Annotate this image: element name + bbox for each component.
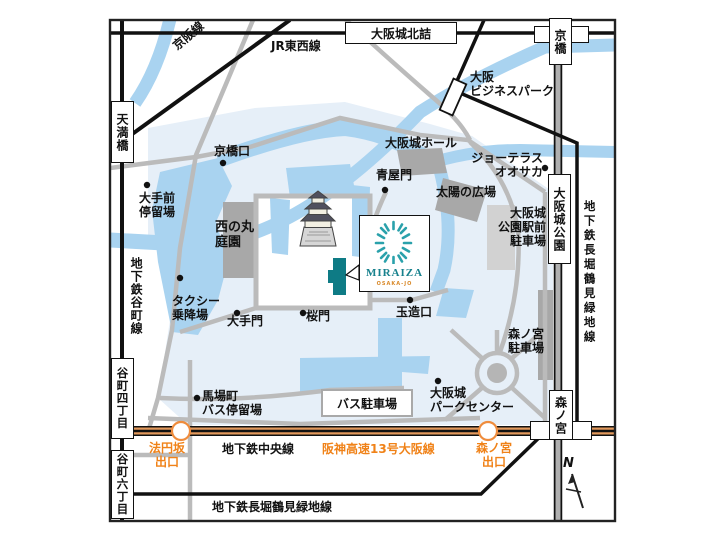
babacho-dot [194, 395, 200, 401]
station-temmabashi: 天満橋 [111, 101, 134, 163]
label-osakajo-hall: 大阪城ホール [385, 136, 457, 150]
label-otemae-teiryujo: 大手前 停留場 [139, 191, 175, 219]
station-morinomiya: 森ノ宮 [549, 390, 573, 439]
label-jr-tozai-line: JR東西線 [271, 39, 321, 53]
north-compass-icon [566, 474, 583, 508]
station-tanimachi-4chome: 谷町四丁目 [111, 358, 134, 439]
label-hoenzaka-exit: 法円坂 出口 [143, 441, 191, 469]
station-osakajo-kitazume: 大阪城北詰 [345, 22, 457, 44]
label-sakuramon: 桜門 [306, 309, 330, 323]
station-kyobashi: 京橋 [549, 18, 572, 65]
label-taiyo-no-hiroba: 太陽の広場 [436, 185, 496, 199]
hoenzaka-exit-circle [172, 422, 190, 440]
miraiza-logo-subtitle: OSAKA-JO [360, 281, 429, 287]
kyobashi-guchi-dot [220, 160, 226, 166]
inner-moat-west [270, 198, 290, 255]
miraiza-logo-box: MIRAIZA OSAKA-JO [359, 215, 430, 292]
label-obp: 大阪 ビジネスパーク [470, 70, 554, 98]
station-osakajo-koen: 大阪城公園 [548, 174, 571, 264]
label-babacho-bus-stop: 馬場町 バス停留場 [202, 389, 262, 417]
tamatsukuri-dot [407, 297, 413, 303]
miraiza-logo-icon [360, 216, 427, 264]
label-taxi-noriba: タクシー 乗降場 [172, 294, 220, 322]
park-center-dot [435, 378, 441, 384]
label-aoyamon: 青屋門 [376, 168, 412, 182]
label-tamatsukuri-guchi: 玉造口 [396, 305, 432, 319]
label-tanimachi-subway-line: 地下鉄谷町線 [129, 257, 143, 343]
miraiza-logo-text: MIRAIZA [360, 267, 429, 279]
label-kyobashi-guchi: 京橋口 [214, 144, 250, 158]
label-jo-terrace: ジョーテラス オオサカ [455, 151, 543, 179]
label-nishinomaru-teien: 西の丸 庭園 [215, 220, 254, 251]
label-morinomiya-exit: 森ノ宮 出口 [470, 441, 518, 469]
otemae-dot [144, 182, 150, 188]
station-tanimachi-6chome: 谷町六丁目 [111, 450, 134, 519]
label-koen-ekimae-parking: 大阪城 公園駅前 駐車場 [468, 206, 546, 248]
morinomiya-exit-circle [479, 422, 497, 440]
label-nagahori-line-bottom: 地下鉄長堀鶴見緑地線 [212, 500, 332, 514]
label-morinomiya-parking: 森ノ宮 駐車場 [508, 327, 544, 355]
osaka-castle-access-map: 大阪城北詰 京橋 天満橋 谷町四丁目 谷町六丁目 大阪城公園 森ノ宮 JR東西線… [0, 0, 720, 537]
compass-north-label: N [563, 456, 574, 471]
label-otemon: 大手門 [227, 314, 263, 328]
label-chuo-subway-line: 地下鉄中央線 [222, 442, 294, 456]
label-bus-parking: バス駐車場 [321, 389, 413, 417]
taxi-dot [177, 275, 183, 281]
label-hanshin-expressway: 阪神高速13号大阪線 [322, 442, 435, 456]
label-park-center: 大阪城 パークセンター [430, 386, 514, 414]
aoyamon-dot [382, 187, 388, 193]
label-nagahori-line-right: 地下鉄長堀鶴見緑地線 [582, 200, 596, 368]
